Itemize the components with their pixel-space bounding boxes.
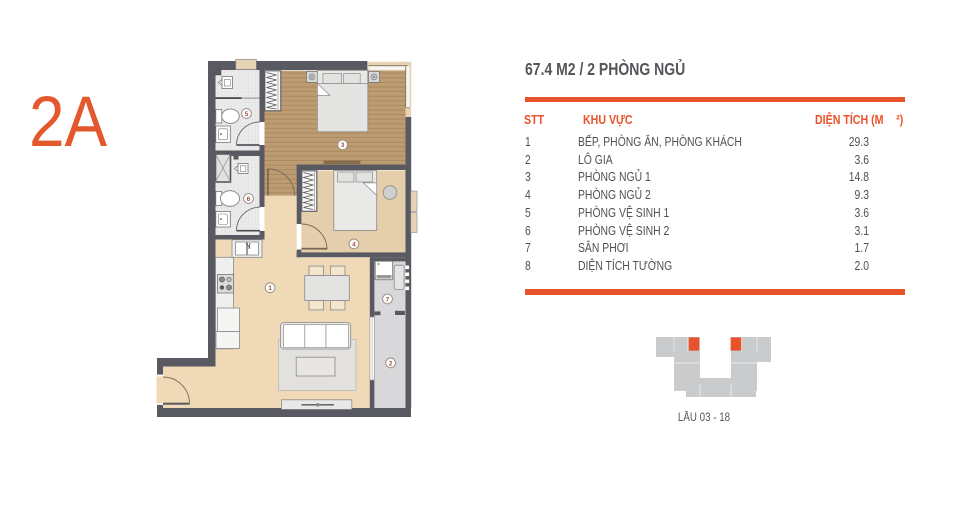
svg-text:2: 2 <box>389 360 393 367</box>
svg-text:5: 5 <box>245 111 249 118</box>
svg-text:3: 3 <box>341 142 345 149</box>
svg-text:1: 1 <box>268 285 272 292</box>
svg-text:6: 6 <box>247 196 251 203</box>
svg-text:7: 7 <box>386 296 390 303</box>
svg-text:4: 4 <box>352 241 356 248</box>
